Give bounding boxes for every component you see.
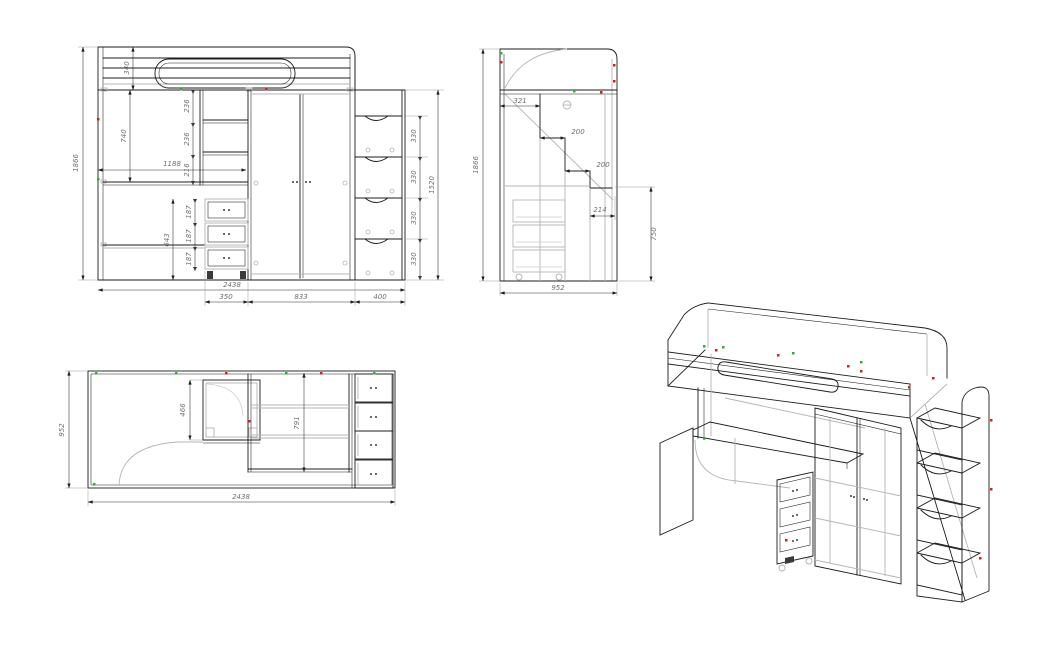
dim-label: 200 — [596, 161, 610, 169]
front-elevation-view: 1866 340 740 1188 236 236 216 643 187 18… — [60, 28, 460, 320]
iso-hardware-markers — [703, 345, 993, 560]
dim-label: 330 — [410, 170, 418, 184]
side-drawer-cart — [505, 186, 590, 280]
plan-desk-curve — [119, 442, 203, 485]
dim-label: 1866 — [72, 154, 80, 172]
dim-label: 1866 — [472, 156, 480, 174]
dim-label: 1188 — [163, 160, 181, 168]
dim-label: 216 — [183, 163, 191, 177]
plan-view: 952 2438 466 791 — [55, 350, 485, 520]
dim-label: 340 — [123, 61, 131, 75]
dim-label: 952 — [58, 423, 66, 437]
dim-label: 330 — [410, 252, 418, 266]
dim-label: 236 — [183, 132, 191, 146]
dim-label: 330 — [410, 129, 418, 143]
dim-label: 2438 — [223, 281, 241, 289]
drawer-unit — [205, 199, 248, 279]
front-dimensions: 1866 340 740 1188 236 236 216 643 187 18… — [72, 47, 444, 306]
iso-ladder — [910, 387, 989, 602]
dim-label: 200 — [571, 128, 585, 136]
wardrobe-front — [248, 90, 350, 280]
dim-label: 791 — [293, 416, 301, 429]
side-hardware-markers — [500, 52, 616, 94]
desk-area — [103, 90, 248, 248]
dim-label: 187 — [185, 252, 193, 266]
dim-label: 740 — [120, 129, 128, 143]
dim-label: 187 — [185, 205, 193, 219]
plan-wardrobe — [248, 374, 352, 488]
plan-hardware-markers — [93, 372, 376, 486]
datum-circle-icon — [563, 101, 571, 109]
dim-label: 643 — [163, 233, 171, 246]
dim-label: 330 — [410, 211, 418, 225]
dim-label: 400 — [373, 293, 387, 301]
dim-label: 2438 — [232, 493, 250, 501]
dim-label: 750 — [650, 227, 658, 241]
plan-cabinet — [203, 380, 260, 443]
isometric-view — [625, 288, 1055, 628]
side-steps — [540, 94, 612, 281]
iso-bed-top — [668, 303, 947, 418]
dim-label: 350 — [219, 293, 233, 301]
dim-label: 236 — [183, 99, 191, 113]
plan-dimensions: 952 2438 466 791 — [58, 371, 395, 506]
dim-label: 321 — [513, 97, 526, 105]
side-elevation-view: 1866 321 200 200 214 750 952 — [455, 28, 690, 320]
dim-label: 1520 — [428, 176, 436, 194]
drawing-canvas: 1866 340 740 1188 236 236 216 643 187 18… — [0, 0, 1055, 648]
dim-label: 952 — [551, 284, 565, 292]
plan-ladder — [355, 374, 393, 488]
dim-label: 466 — [179, 403, 187, 417]
dim-label: 833 — [294, 293, 307, 301]
dim-label: 214 — [593, 206, 606, 214]
ladder-front — [355, 90, 405, 280]
iso-wardrobe — [815, 408, 901, 584]
dim-label: 187 — [185, 229, 193, 243]
